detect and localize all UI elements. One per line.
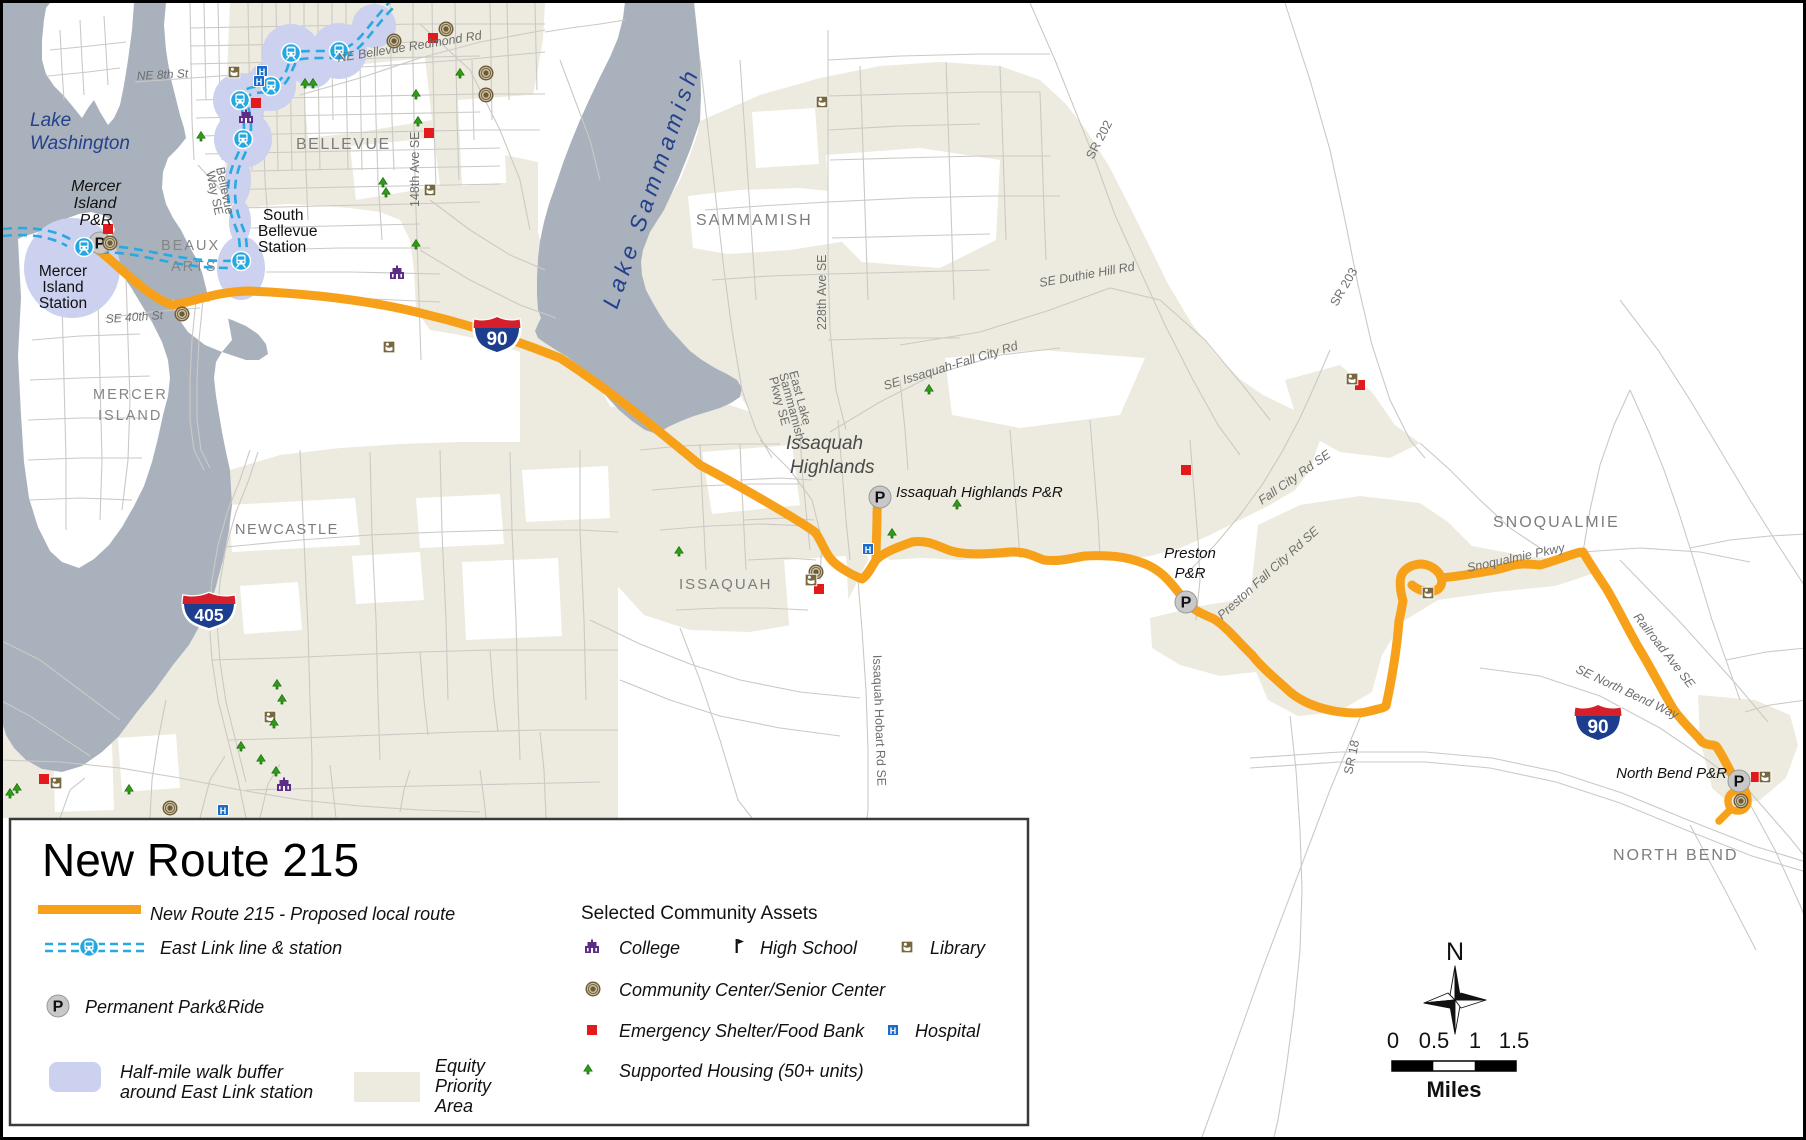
svg-text:Permanent Park&Ride: Permanent Park&Ride [85, 997, 264, 1017]
svg-text:Station: Station [39, 295, 87, 312]
svg-text:90: 90 [1587, 717, 1608, 738]
svg-text:East Link line & station: East Link line & station [160, 938, 342, 958]
svg-text:Half-mile walk buffer: Half-mile walk buffer [120, 1062, 284, 1082]
svg-text:Mercer: Mercer [71, 178, 121, 195]
svg-text:90: 90 [486, 329, 507, 350]
svg-text:BELLEVUE: BELLEVUE [296, 136, 391, 153]
svg-text:Equity: Equity [435, 1056, 486, 1076]
svg-text:Priority: Priority [435, 1076, 492, 1096]
svg-text:New Route 215 - Proposed local: New Route 215 - Proposed local route [150, 904, 455, 924]
svg-text:Washington: Washington [30, 133, 130, 154]
svg-text:P&R: P&R [1175, 565, 1206, 582]
svg-text:Preston: Preston [1164, 545, 1216, 562]
svg-text:Station: Station [258, 239, 306, 256]
svg-text:ISSAQUAH: ISSAQUAH [679, 576, 773, 593]
svg-text:NORTH BEND: NORTH BEND [1613, 847, 1739, 864]
svg-text:Supported Housing (50+ units): Supported Housing (50+ units) [619, 1061, 864, 1081]
svg-text:228th Ave SE: 228th Ave SE [815, 254, 829, 330]
svg-text:0: 0 [1387, 1028, 1399, 1053]
svg-text:1.5: 1.5 [1499, 1028, 1530, 1053]
svg-text:Miles: Miles [1426, 1077, 1481, 1102]
svg-text:Library: Library [930, 938, 986, 958]
svg-text:ISLAND: ISLAND [98, 408, 162, 424]
svg-text:Mercer: Mercer [39, 263, 87, 280]
svg-text:BEAUX: BEAUX [161, 238, 220, 254]
svg-text:Island: Island [74, 195, 118, 212]
svg-text:Issaquah Highlands P&R: Issaquah Highlands P&R [896, 484, 1063, 501]
svg-text:1: 1 [1469, 1028, 1481, 1053]
svg-text:148th Ave SE: 148th Ave SE [408, 131, 422, 207]
svg-text:NEWCASTLE: NEWCASTLE [235, 522, 339, 538]
svg-text:North Bend P&R: North Bend P&R [1616, 765, 1727, 782]
svg-text:Emergency Shelter/Food Bank: Emergency Shelter/Food Bank [619, 1021, 865, 1041]
svg-text:NE 8th St: NE 8th St [136, 66, 189, 83]
svg-text:Community Center/Senior Center: Community Center/Senior Center [619, 980, 886, 1000]
svg-text:South: South [263, 207, 304, 224]
svg-text:405: 405 [194, 605, 223, 625]
svg-text:Bellevue: Bellevue [258, 223, 317, 240]
svg-text:Area: Area [434, 1096, 473, 1116]
svg-text:New Route 215: New Route 215 [42, 834, 359, 886]
svg-text:Island: Island [42, 279, 83, 296]
svg-text:around East Link station: around East Link station [120, 1082, 313, 1102]
svg-text:Hospital: Hospital [915, 1021, 981, 1041]
svg-text:Selected Community Assets: Selected Community Assets [581, 903, 818, 924]
svg-text:0.5: 0.5 [1419, 1028, 1450, 1053]
svg-text:MERCER: MERCER [93, 387, 168, 403]
svg-text:P&R: P&R [80, 212, 113, 229]
svg-text:Highlands: Highlands [790, 457, 875, 478]
svg-text:High School: High School [760, 938, 858, 958]
svg-text:SAMMAMISH: SAMMAMISH [696, 212, 813, 229]
svg-text:N: N [1446, 938, 1464, 966]
svg-text:College: College [619, 938, 680, 958]
svg-text:Lake: Lake [30, 110, 71, 131]
svg-text:SNOQUALMIE: SNOQUALMIE [1493, 514, 1620, 531]
svg-text:ARTS: ARTS [171, 259, 217, 275]
